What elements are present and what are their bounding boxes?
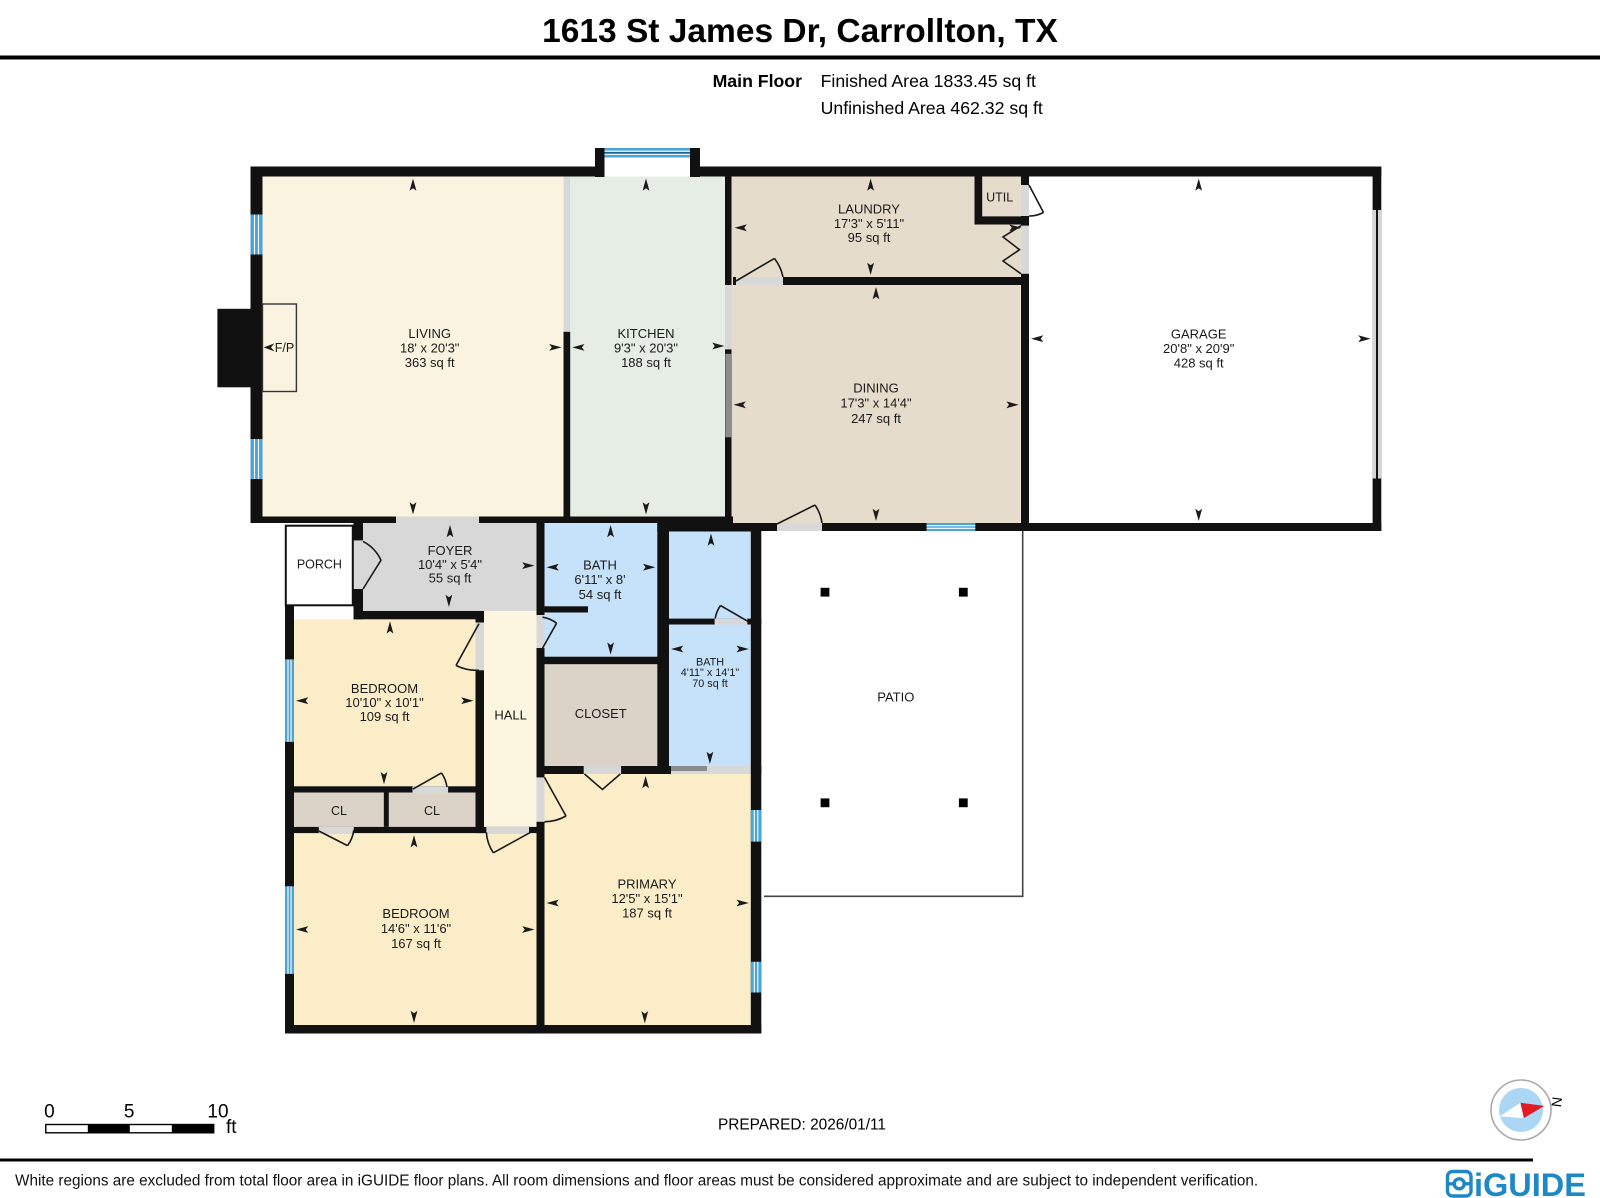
svg-text:20'8" x 20'9": 20'8" x 20'9" — [1163, 341, 1235, 356]
svg-text:167 sq ft: 167 sq ft — [391, 936, 441, 951]
svg-text:Finished Area 1833.45 sq ft: Finished Area 1833.45 sq ft — [821, 71, 1036, 91]
svg-text:BEDROOM: BEDROOM — [382, 906, 449, 921]
svg-text:CL: CL — [331, 804, 347, 818]
svg-text:PATIO: PATIO — [877, 690, 914, 705]
svg-text:12'5" x 15'1": 12'5" x 15'1" — [611, 891, 683, 906]
svg-text:ft: ft — [226, 1117, 237, 1138]
svg-text:FOYER: FOYER — [428, 543, 473, 558]
svg-text:95 sq ft: 95 sq ft — [848, 230, 891, 245]
svg-text:1613 St James Dr, Carrollton,: 1613 St James Dr, Carrollton, TX — [542, 13, 1058, 50]
svg-text:18' x 20'3": 18' x 20'3" — [400, 340, 460, 355]
svg-text:6'11" x 8': 6'11" x 8' — [574, 572, 625, 587]
svg-text:188 sq ft: 188 sq ft — [621, 355, 671, 370]
svg-text:70 sq ft: 70 sq ft — [692, 678, 727, 690]
svg-text:428 sq ft: 428 sq ft — [1174, 356, 1224, 371]
svg-text:9'3" x 20'3": 9'3" x 20'3" — [614, 340, 678, 355]
svg-text:BEDROOM: BEDROOM — [351, 681, 418, 696]
svg-text:187 sq ft: 187 sq ft — [622, 906, 672, 921]
svg-text:109 sq ft: 109 sq ft — [360, 709, 410, 724]
svg-text:10'10" x 10'1": 10'10" x 10'1" — [345, 695, 424, 710]
svg-text:17'3" x 14'4": 17'3" x 14'4" — [840, 396, 912, 411]
svg-text:DINING: DINING — [853, 381, 899, 396]
svg-text:F/P: F/P — [275, 341, 294, 355]
svg-text:CLOSET: CLOSET — [575, 706, 627, 721]
svg-text:247 sq ft: 247 sq ft — [851, 411, 901, 426]
svg-text:5: 5 — [124, 1101, 135, 1122]
svg-text:UTIL: UTIL — [986, 191, 1013, 205]
svg-text:White regions are excluded fro: White regions are excluded from total fl… — [15, 1173, 1258, 1190]
svg-text:10'4" x 5'4": 10'4" x 5'4" — [418, 557, 482, 572]
svg-text:CL: CL — [424, 804, 440, 818]
svg-text:54 sq ft: 54 sq ft — [579, 587, 622, 602]
svg-text:LAUNDRY: LAUNDRY — [838, 202, 900, 217]
svg-text:14'6" x 11'6": 14'6" x 11'6" — [381, 921, 452, 936]
svg-text:GARAGE: GARAGE — [1171, 327, 1227, 342]
svg-text:55 sq ft: 55 sq ft — [429, 571, 472, 586]
svg-text:0: 0 — [44, 1101, 55, 1122]
svg-text:PRIMARY: PRIMARY — [618, 876, 677, 891]
svg-text:KITCHEN: KITCHEN — [617, 326, 674, 341]
svg-text:Main Floor: Main Floor — [713, 71, 803, 91]
svg-text:17'3" x 5'11": 17'3" x 5'11" — [834, 216, 905, 231]
svg-text:Unfinished Area 462.32 sq ft: Unfinished Area 462.32 sq ft — [821, 98, 1043, 118]
svg-text:BATH: BATH — [583, 558, 617, 573]
svg-text:iGUIDE: iGUIDE — [1474, 1167, 1586, 1198]
svg-text:363 sq ft: 363 sq ft — [405, 355, 455, 370]
svg-text:HALL: HALL — [494, 707, 527, 722]
svg-text:PORCH: PORCH — [297, 557, 342, 571]
svg-text:LIVING: LIVING — [408, 326, 451, 341]
svg-text:N: N — [1548, 1096, 1565, 1108]
svg-text:PREPARED: 2026/01/11: PREPARED: 2026/01/11 — [718, 1117, 886, 1134]
